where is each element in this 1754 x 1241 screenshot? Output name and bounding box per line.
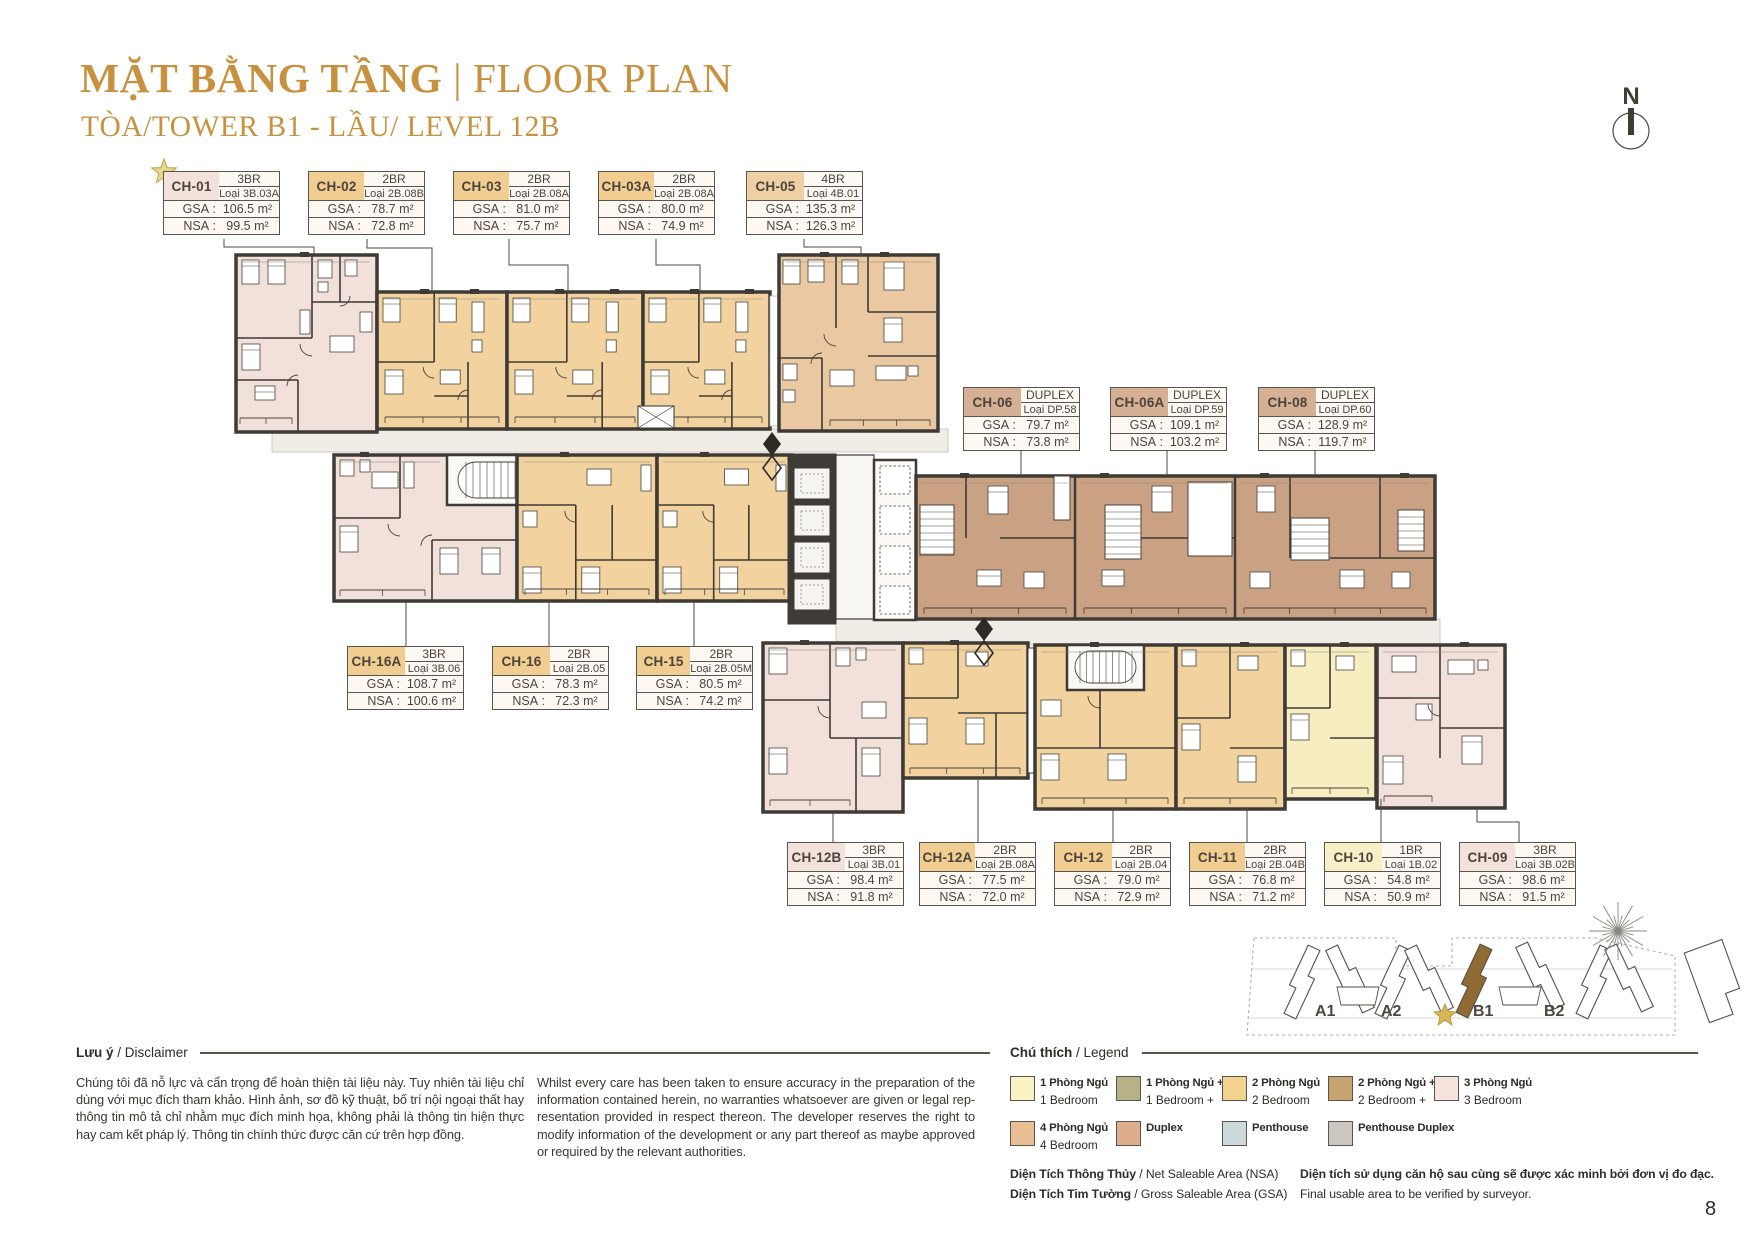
- svg-text:A1: A1: [1315, 1003, 1336, 1020]
- svg-text:B2: B2: [1544, 1003, 1565, 1020]
- svg-text:N: N: [1622, 83, 1639, 110]
- svg-text:A2: A2: [1381, 1003, 1402, 1020]
- svg-text:B1: B1: [1473, 1003, 1494, 1020]
